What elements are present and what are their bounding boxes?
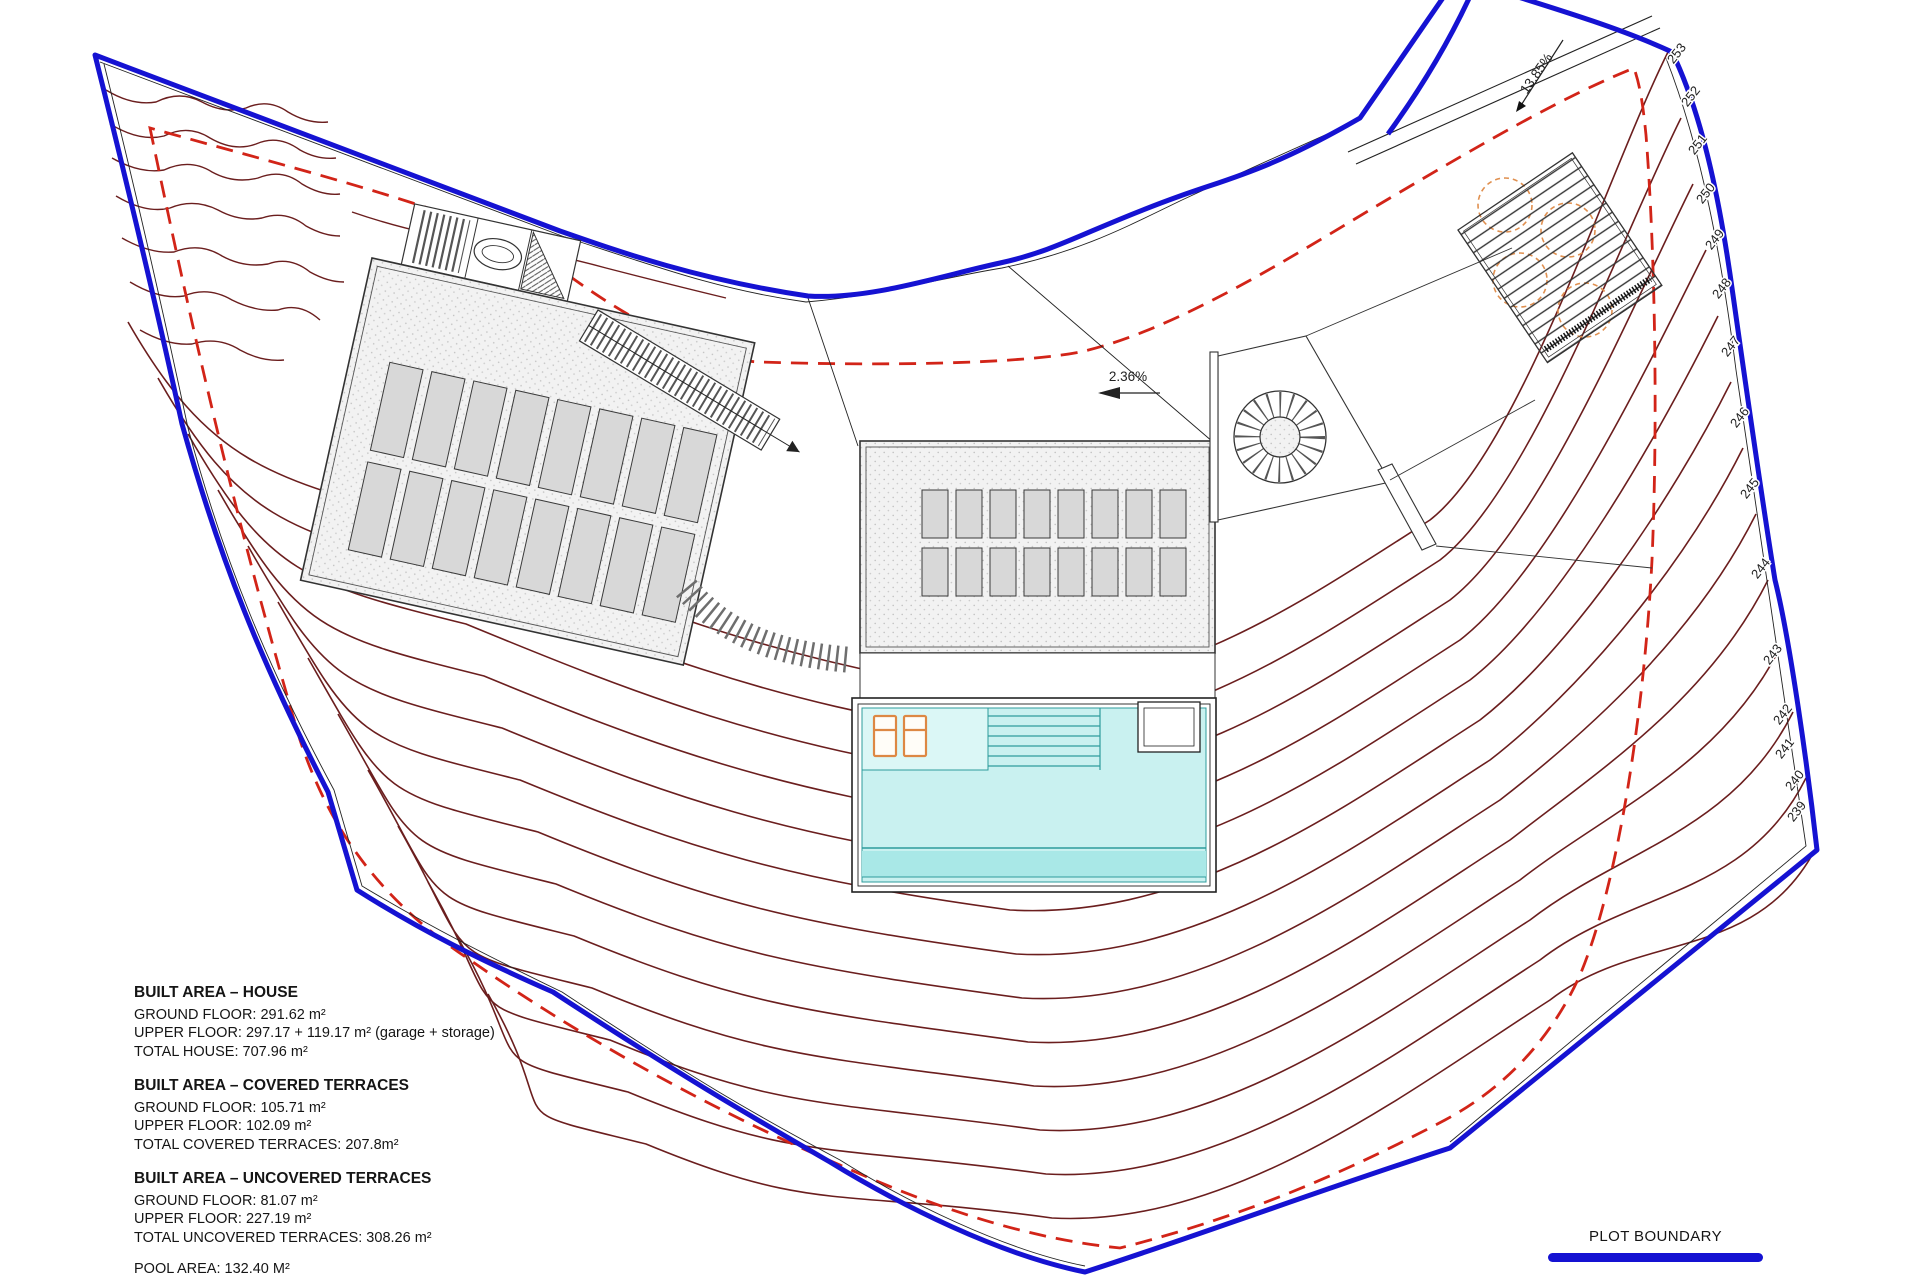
- area-house-title: BUILT AREA – HOUSE: [134, 984, 495, 1003]
- pool-area-line: POOL AREA: 132.40 M²: [134, 1260, 290, 1279]
- area-covered-line: UPPER FLOOR: 102.09 m²: [134, 1117, 409, 1136]
- retaining-wall: [1210, 352, 1218, 522]
- infinity-edge: [862, 848, 1206, 877]
- area-uncovered-line: TOTAL UNCOVERED TERRACES: 308.26 m²: [134, 1229, 432, 1248]
- pool: [852, 698, 1216, 892]
- slope-driveway-arrow: [1516, 101, 1526, 112]
- pergola: [1458, 153, 1662, 363]
- stair-direction-arrow: [786, 441, 802, 457]
- spiral-staircase: [1234, 391, 1326, 483]
- garage-building: [301, 197, 769, 665]
- area-uncovered-line: GROUND FLOOR: 81.07 m²: [134, 1192, 432, 1211]
- slope-main-label: 2.36%: [1109, 369, 1147, 384]
- area-house-line: GROUND FLOOR: 291.62 m²: [134, 1006, 495, 1025]
- area-summary-pool: POOL AREA: 132.40 M²: [134, 1260, 290, 1279]
- slope-annotation-main: 2.36%: [1098, 369, 1160, 399]
- svg-text:252: 252: [1678, 83, 1703, 109]
- terrace-band: [860, 653, 1215, 698]
- driveway-lines: [1348, 16, 1660, 164]
- site-plan-page: 2.36% 13.85% 253 252 251 250 249 248 247…: [0, 0, 1920, 1280]
- area-covered-line: TOTAL COVERED TERRACES: 207.8m²: [134, 1136, 409, 1155]
- area-covered-title: BUILT AREA – COVERED TERRACES: [134, 1077, 409, 1096]
- spa-box: [1138, 702, 1200, 752]
- curved-louver-walkway: [686, 588, 852, 660]
- legend: PLOT BOUNDARY: [1548, 1228, 1763, 1262]
- area-house-line: TOTAL HOUSE: 707.96 m²: [134, 1043, 495, 1062]
- svg-text:239: 239: [1784, 798, 1809, 824]
- slope-main-arrow: [1098, 387, 1120, 399]
- svg-text:242: 242: [1770, 701, 1795, 727]
- area-summary-uncovered: BUILT AREA – UNCOVERED TERRACES GROUND F…: [134, 1170, 432, 1247]
- legend-plot-boundary-label: PLOT BOUNDARY: [1548, 1228, 1763, 1245]
- legend-plot-boundary-swatch: [1548, 1253, 1763, 1262]
- area-uncovered-line: UPPER FLOOR: 227.19 m²: [134, 1210, 432, 1229]
- area-covered-line: GROUND FLOOR: 105.71 m²: [134, 1099, 409, 1118]
- ramp-wall: [1378, 464, 1436, 550]
- svg-text:243: 243: [1760, 641, 1785, 667]
- area-summary-covered: BUILT AREA – COVERED TERRACES GROUND FLO…: [134, 1077, 409, 1154]
- main-house-building: [860, 441, 1215, 698]
- area-uncovered-title: BUILT AREA – UNCOVERED TERRACES: [134, 1170, 432, 1189]
- contour-elevation-labels: 253 252 251 250 249 248 247 246 245 244 …: [1664, 40, 1809, 824]
- area-house-line: UPPER FLOOR: 297.17 + 119.17 m² (garage …: [134, 1024, 495, 1043]
- svg-text:240: 240: [1782, 767, 1807, 793]
- slope-annotation-driveway: 13.85%: [1516, 40, 1563, 112]
- area-summary-house: BUILT AREA – HOUSE GROUND FLOOR: 291.62 …: [134, 984, 495, 1061]
